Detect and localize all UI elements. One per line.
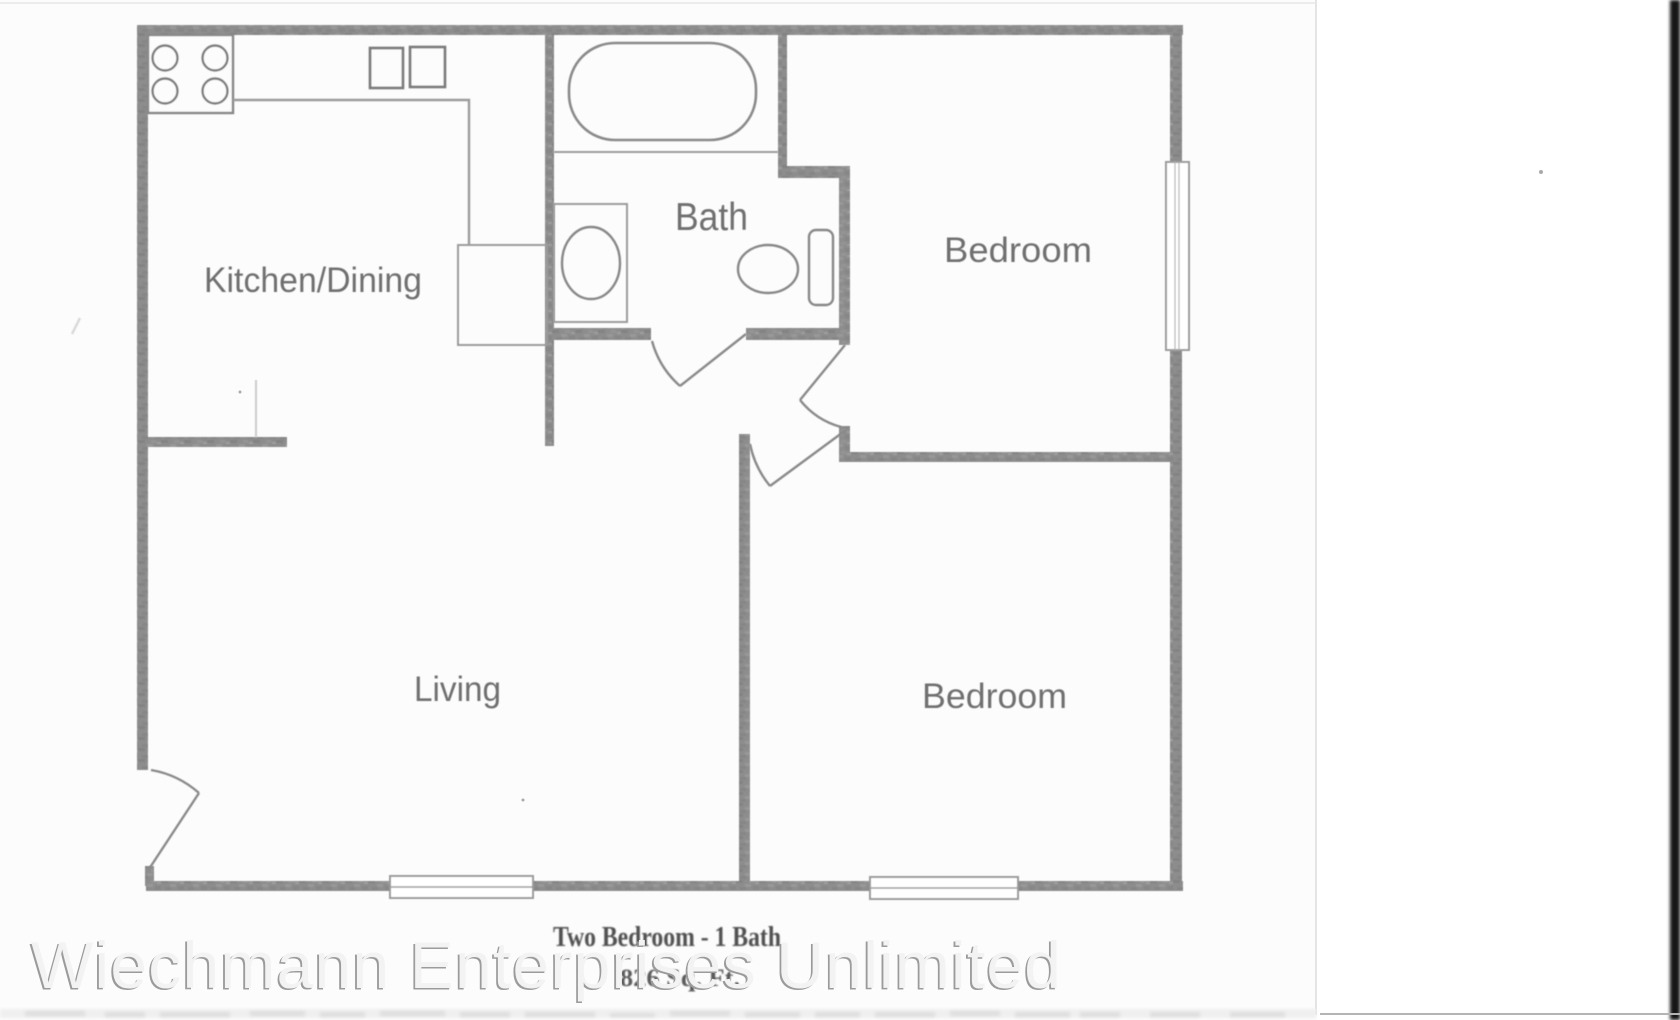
svg-text:Bedroom: Bedroom bbox=[922, 677, 1067, 716]
svg-text:Kitchen/Dining: Kitchen/Dining bbox=[204, 261, 422, 300]
svg-text:Bath: Bath bbox=[675, 196, 748, 239]
svg-text:Wiechmann Enterprises Unlimite: Wiechmann Enterprises Unlimited bbox=[31, 928, 1061, 1002]
svg-text:Living: Living bbox=[414, 670, 501, 709]
svg-text:Bedroom: Bedroom bbox=[944, 231, 1092, 270]
